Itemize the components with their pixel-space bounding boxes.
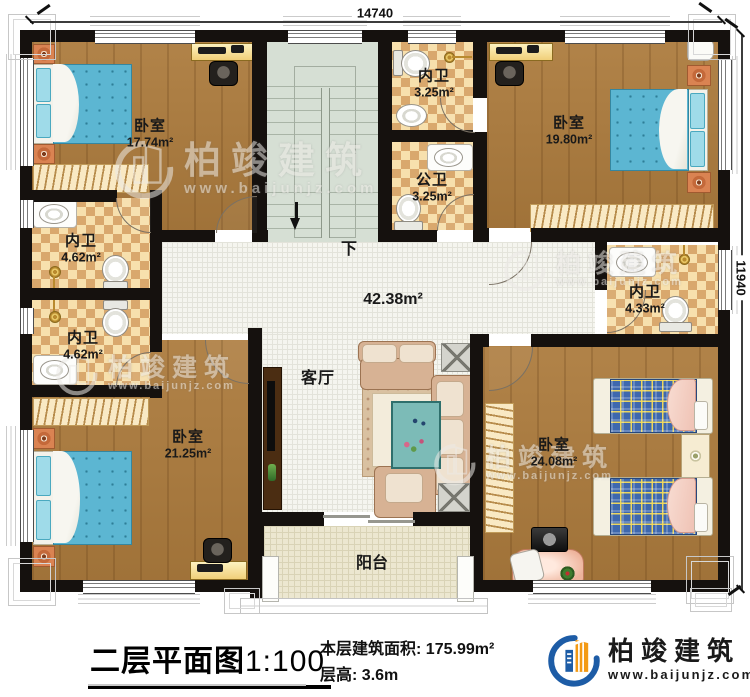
plan-title: 二层平面图1:100	[88, 636, 331, 689]
nightstand	[687, 65, 711, 86]
floor-plan-page: 柏竣建筑www.baijunjz.com 柏竣建筑www.baijunjz.co…	[0, 0, 750, 697]
stair-direction-label: 下	[341, 241, 357, 259]
wall-between-leftbaths	[20, 288, 150, 300]
drain-pipe	[452, 56, 472, 58]
nightstand	[33, 428, 55, 449]
computer-monitor	[531, 527, 568, 552]
pillow	[36, 456, 51, 496]
room-name: 内卫	[61, 234, 101, 251]
room-name: 公卫	[412, 173, 452, 190]
brand-website: www.baijunjz.com	[608, 667, 750, 682]
desk-items	[496, 47, 522, 54]
room-label-hall: 客厅	[301, 370, 335, 388]
room-area: 21.25m²	[165, 446, 212, 460]
room-area: 4.33m²	[625, 301, 665, 315]
title-underline-shadow	[88, 684, 306, 686]
sink	[40, 360, 69, 380]
window	[20, 200, 34, 228]
roof-tick	[699, 2, 713, 13]
drain-pipe	[683, 245, 685, 255]
tv	[267, 381, 275, 451]
window	[718, 60, 732, 170]
dimension-right-value: 11940	[734, 255, 749, 300]
stair-rail	[321, 88, 330, 238]
room-area: 3.25m²	[414, 85, 454, 99]
room-label-balcony: 阳台	[356, 555, 388, 573]
floor-area-label: 本层建筑面积:	[320, 641, 421, 658]
room-name: 卧室	[165, 430, 212, 447]
floor-info: 本层建筑面积: 175.99m² 层高: 3.6m	[320, 637, 494, 690]
window	[565, 30, 665, 44]
room-area: 4.62m²	[63, 347, 103, 361]
wall-leftbath-right-b	[150, 386, 162, 398]
balcony-post	[262, 556, 279, 602]
side-table	[441, 343, 473, 372]
wall-bathpublic-bottom	[392, 230, 437, 242]
stair-arrow-head	[290, 218, 300, 230]
wall-bedroombr-top-b	[531, 334, 730, 347]
desk-lamp	[231, 45, 244, 53]
wall-balcony-stub-right	[413, 512, 483, 526]
dimension-line-right	[741, 34, 743, 590]
room-name: 卧室	[546, 116, 593, 133]
nightstand	[33, 144, 55, 164]
floor-drain	[444, 52, 455, 63]
office-chair	[209, 61, 238, 86]
pillow	[36, 500, 51, 540]
desk-items	[197, 564, 223, 572]
window	[718, 250, 732, 310]
window	[20, 308, 34, 334]
coffee-table	[391, 401, 441, 469]
toilet-bowl	[102, 255, 129, 284]
toilet-bowl	[662, 296, 689, 325]
window-sill	[78, 594, 200, 606]
room-name: 客厅	[301, 370, 335, 388]
wardrobe	[33, 398, 149, 426]
window-sill	[6, 54, 18, 170]
pillow	[694, 401, 708, 430]
wall-between-topbaths	[392, 130, 473, 142]
room-label-bath-left-upper: 内卫 4.62m²	[61, 234, 101, 265]
corner-ornament	[224, 588, 260, 614]
wall-leftbath-right-a	[150, 190, 162, 352]
decor-plant	[268, 464, 276, 481]
plan-title-text: 二层平面图	[90, 645, 245, 678]
hall-area-label: 42.38m²	[363, 291, 423, 309]
room-label-bath-top: 内卫 3.25m²	[414, 69, 454, 100]
wall-bedroomtr-bottom-a	[473, 228, 489, 242]
room-name: 卧室	[127, 119, 174, 136]
wall-bedroomtl-hall-b	[256, 230, 268, 242]
pillow	[36, 68, 51, 102]
quilt-fold	[667, 379, 696, 431]
side-table	[438, 483, 470, 512]
sink	[39, 204, 69, 224]
sofa-cushion	[399, 344, 434, 363]
wall-bedroomtr-bottom-b	[531, 228, 730, 242]
room-area: 24.08m²	[531, 454, 578, 468]
window	[20, 430, 34, 542]
sink	[434, 148, 463, 167]
sofa-cushion	[362, 344, 397, 363]
wall-bedroombr-left	[470, 334, 483, 592]
brand-logo-icon	[546, 633, 600, 687]
wardrobe	[485, 403, 514, 533]
window-sill	[528, 594, 656, 606]
floor-area-line: 本层建筑面积: 175.99m²	[320, 637, 494, 663]
wall-bath-bedroomtr-a	[473, 42, 487, 98]
sink	[616, 252, 648, 273]
wall-bathright-left	[595, 242, 607, 290]
corner-ornament	[8, 558, 56, 606]
toilet-tank	[659, 322, 692, 332]
toilet-bowl	[102, 308, 129, 337]
room-area: 19.80m²	[546, 132, 593, 146]
office-chair	[203, 538, 232, 563]
brand-name: 柏竣建筑	[608, 638, 750, 665]
nightstand-lamp	[681, 434, 710, 478]
stair-arrow-stem	[295, 202, 298, 218]
wall-stair-right	[378, 42, 392, 242]
window	[95, 30, 195, 44]
pillow	[690, 131, 705, 167]
pillow	[36, 104, 51, 138]
wardrobe	[33, 164, 149, 193]
room-label-bath-right: 内卫 4.33m²	[625, 285, 665, 316]
wall-bath-bedroomtr-b	[473, 132, 487, 242]
pillow	[690, 93, 705, 129]
window	[533, 580, 651, 594]
window	[20, 58, 34, 166]
floor-drain	[49, 311, 61, 323]
room-area: 3.25m²	[412, 189, 452, 203]
dimension-line-top	[30, 21, 722, 23]
sink	[396, 104, 427, 127]
room-name: 卧室	[531, 438, 578, 455]
room-name: 内卫	[625, 285, 665, 302]
wall-bedroomtl-bath	[20, 190, 117, 202]
floor-drain	[49, 266, 61, 278]
office-chair	[495, 61, 524, 86]
room-label-bath-public: 公卫 3.25m²	[412, 173, 452, 204]
hall-floor-band	[162, 242, 595, 334]
floor-drain	[679, 254, 690, 265]
room-name: 内卫	[414, 69, 454, 86]
corner-ornament	[690, 588, 732, 612]
quilt-fold	[667, 478, 696, 533]
room-name: 内卫	[63, 331, 103, 348]
room-label-bedroom-tl: 卧室 17.74m²	[127, 119, 174, 150]
balcony-sliding-door	[323, 515, 370, 518]
room-area: 17.74m²	[127, 135, 174, 149]
plan-scale-text: 1:100	[245, 645, 325, 678]
room-label-bedroom-tr: 卧室 19.80m²	[546, 116, 593, 147]
window-sill	[6, 426, 18, 546]
balcony-railing	[240, 598, 488, 614]
room-label-bath-left-lower: 内卫 4.62m²	[63, 331, 103, 362]
floor-height-label: 层高:	[320, 667, 357, 684]
window	[83, 580, 195, 594]
desk-items	[198, 47, 226, 54]
window	[288, 30, 362, 44]
desk-lamp	[527, 45, 539, 53]
armchair-cushion	[385, 473, 423, 503]
dimension-top-value: 14740	[352, 6, 398, 21]
room-label-bedroom-bl: 卧室 21.25m²	[165, 430, 212, 461]
window	[408, 30, 456, 44]
room-label-bedroom-br: 卧室 24.08m²	[531, 438, 578, 469]
balcony-sliding-door	[368, 520, 415, 523]
brand-logo: 柏竣建筑 www.baijunjz.com	[546, 633, 750, 687]
room-area: 4.62m²	[61, 250, 101, 264]
pillow	[694, 503, 708, 532]
wall-bedroombr-top-a	[470, 334, 489, 347]
balcony-post	[457, 556, 474, 602]
roof-tick	[37, 4, 51, 15]
floor-height-value: 3.6m	[362, 667, 398, 684]
floor-area-value: 175.99m²	[426, 641, 495, 658]
wall-bedroomtl-hall-a	[162, 230, 215, 242]
floor-height-line: 层高: 3.6m	[320, 663, 494, 689]
nightstand	[687, 172, 711, 193]
